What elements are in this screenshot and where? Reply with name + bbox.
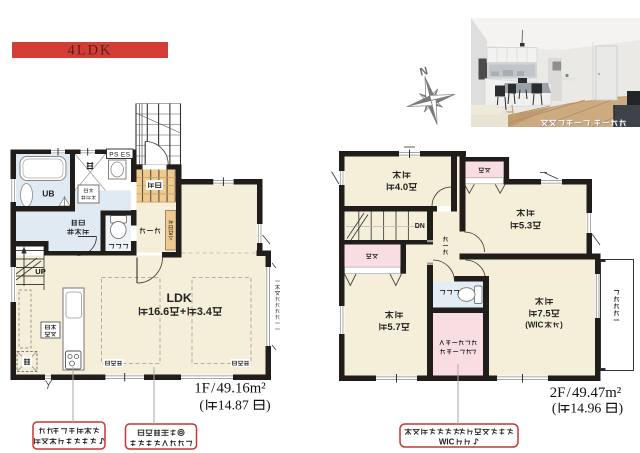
svg-text:(WIC: (WIC	[525, 320, 543, 329]
svg-text:N: N	[419, 65, 430, 79]
svg-text:4LDK: 4LDK	[67, 43, 112, 59]
svg-text:UB: UB	[42, 189, 54, 199]
svg-text:): )	[266, 397, 271, 413]
svg-text:DN: DN	[415, 223, 425, 230]
svg-text:5.3: 5.3	[519, 220, 532, 231]
svg-text:): )	[560, 320, 563, 329]
svg-text:(: (	[552, 400, 557, 416]
svg-text:1F / 49.16m²: 1F / 49.16m²	[194, 381, 266, 397]
svg-text:14.87: 14.87	[218, 397, 249, 412]
svg-text:UP: UP	[35, 267, 45, 276]
svg-text:7.5: 7.5	[537, 308, 551, 319]
svg-text:5.7: 5.7	[387, 322, 400, 333]
svg-text:WIC: WIC	[439, 437, 455, 446]
svg-text:LDK: LDK	[166, 291, 191, 305]
svg-text:4.0: 4.0	[395, 182, 408, 193]
svg-text:16.6: 16.6	[148, 306, 169, 318]
svg-text:3.4: 3.4	[197, 306, 212, 318]
svg-text:PS ES: PS ES	[109, 151, 130, 158]
svg-text:): )	[619, 400, 624, 416]
svg-text:+: +	[180, 306, 186, 318]
svg-text:14.96: 14.96	[570, 400, 601, 415]
svg-text:2F / 49.47m²: 2F / 49.47m²	[550, 385, 622, 401]
svg-text:(: (	[199, 397, 204, 413]
